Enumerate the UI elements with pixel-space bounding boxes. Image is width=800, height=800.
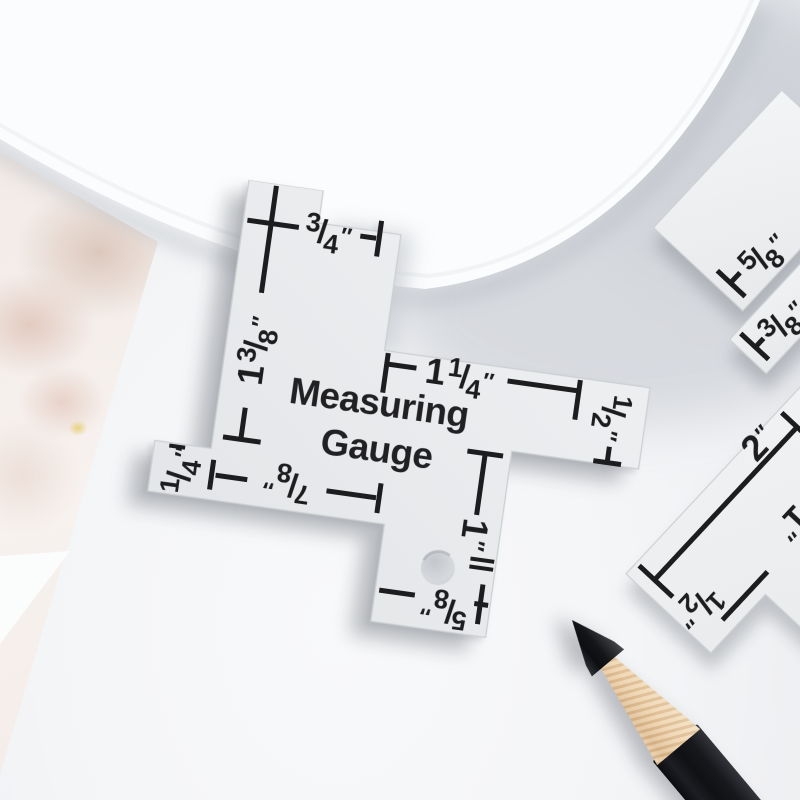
scene: 2″ 1/2″ 3/8″ 5/8″ 1″ <box>0 0 800 800</box>
dim-line <box>360 236 376 238</box>
